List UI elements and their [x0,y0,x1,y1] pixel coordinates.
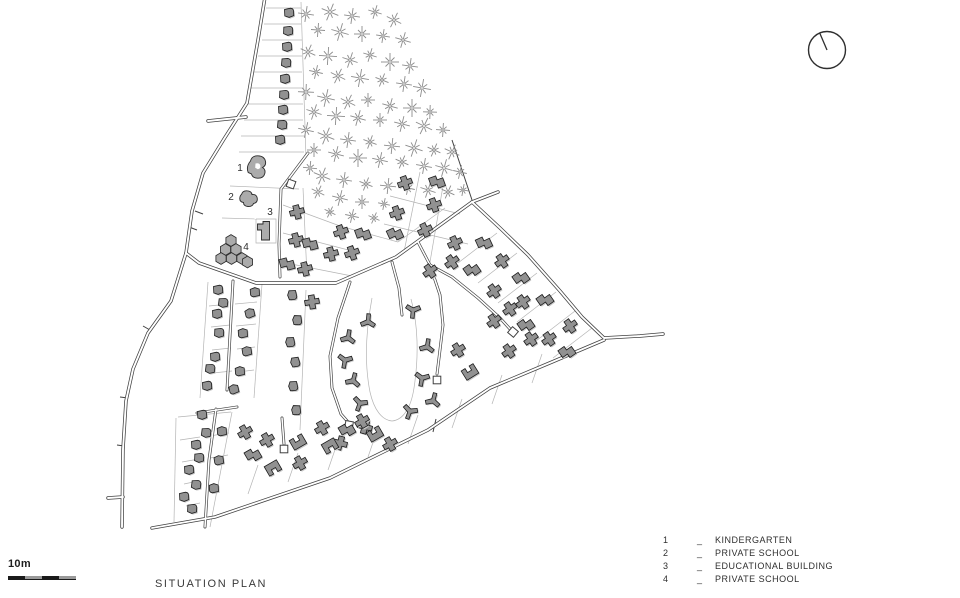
driveway-stub [143,326,150,330]
tree-icon [327,107,345,125]
tree-icon [314,168,331,185]
house-footprint [296,261,313,278]
legend-row: 2 _ PRIVATE SCHOOL [663,548,943,561]
house-footprint [446,234,465,252]
north-needle-icon [820,33,828,51]
tree-icon [342,52,357,67]
site-plan-drawing: 1234 [0,0,960,598]
lane-casing [330,282,350,422]
lane-surface [330,282,350,422]
public-building [240,191,258,207]
house-footprint [198,410,207,419]
house-footprint [281,58,291,68]
tree-icon [435,159,452,176]
tree-icon [405,139,422,156]
tree-icon [363,135,376,148]
house-footprint [416,221,435,239]
lane-surface [205,409,216,527]
house-footprint [400,404,419,422]
house-footprint [244,446,262,464]
house-footprint [291,405,301,415]
house-footprint [512,269,530,287]
parcel-line [254,284,262,398]
legend-separator: _ [697,548,715,558]
tree-icon [354,26,370,42]
house-footprint [463,261,481,279]
legend-separator: _ [697,574,715,584]
house-footprint [277,120,287,130]
scale-bar-graphic [8,576,76,580]
tree-icon [319,47,337,65]
tree-icon [345,209,359,223]
parcel-line [430,180,444,262]
lane-surface [227,281,233,390]
tree-icon [317,89,335,107]
tree-icon [380,178,396,194]
tree-icon [428,144,441,157]
house-footprint [517,316,535,334]
house-footprint [419,338,436,354]
house-footprint [292,315,302,325]
tree-icon [368,5,381,18]
legend-separator: _ [697,561,715,571]
house-footprint [211,352,220,361]
public-building [258,222,270,241]
tree-icon [376,74,389,87]
tree-icon [402,58,418,74]
tree-icon [413,79,431,97]
tree-icon [396,76,412,92]
house-footprint [288,291,297,300]
house-footprint [288,204,305,221]
tree-icon [298,84,314,100]
house-footprint [264,460,282,477]
scale-segment [8,576,25,579]
house-footprint [209,484,218,493]
house-footprint [218,297,229,308]
legend-row: 3 _ EDUCATIONAL BUILDING [663,561,943,574]
house-footprint [285,8,294,17]
house-footprint [214,285,223,294]
house-footprint [283,42,292,51]
tree-icon [341,95,355,109]
lane-turnaround [280,445,288,453]
house-footprint [281,74,290,83]
tree-icon [381,53,399,71]
tree-icon [378,198,390,210]
tree-icon [331,69,345,83]
tree-icon [307,143,321,157]
house-footprint [388,204,406,222]
house-footprint [187,504,197,514]
legend-number: 1 [663,535,697,545]
tree-icon [376,29,390,43]
house-footprint [192,440,201,449]
parcel-line [174,418,176,522]
legend: 1 _ KINDERGARTEN 2 _ PRIVATE SCHOOL 3 _ … [663,535,943,587]
tree-icon [309,65,323,79]
tree-icon [340,132,356,148]
tree-icon [298,6,314,22]
tree-icon [322,4,339,21]
legend-number: 2 [663,548,697,558]
house-footprint [343,244,361,262]
tree-icon [445,145,460,160]
house-footprint [332,223,350,241]
tree-icon [403,99,421,117]
tree-icon [328,146,344,162]
tree-icon [363,48,376,61]
house-footprint [289,434,307,451]
house-footprint [205,363,216,374]
tree-icon [344,8,360,24]
building-number-label: 2 [228,192,234,203]
tree-icon [436,123,450,137]
scale-segment [59,576,76,579]
house-footprint [214,328,224,338]
legend-row: 1 _ KINDERGARTEN [663,535,943,548]
house-footprint [191,479,202,490]
house-footprint [279,90,289,100]
house-footprint [340,329,357,345]
house-footprint [242,346,252,356]
tree-icon [384,138,400,154]
tree-icon [394,116,410,132]
house-footprint [536,291,554,309]
house-footprint [217,427,226,436]
house-footprint [461,364,479,381]
parcel-line [180,437,200,440]
lane-surface [418,242,443,374]
house-footprint [250,288,259,297]
tree-icon [349,149,367,167]
trees-layer [298,4,469,224]
tree-icon [416,158,432,174]
parcel-line [200,282,208,398]
house-footprint [279,105,288,114]
tree-icon [336,172,352,188]
house-footprint [201,427,212,438]
house-footprint [194,453,204,463]
tree-icon [396,156,409,169]
parcel-line [248,465,258,494]
tree-icon [373,113,387,127]
house-footprint [286,338,295,347]
tree-icon [350,110,365,125]
road-surface [472,192,498,202]
scale-bar: 10m [8,558,98,580]
parcel-line [236,324,256,326]
green-space-outline [366,298,417,421]
tree-icon [423,105,437,119]
house-footprint [289,382,298,391]
legend-number: 3 [663,561,697,571]
tree-icon [331,23,348,40]
house-footprint [213,309,222,318]
tree-icon [369,213,380,224]
legend-number: 4 [663,574,697,584]
north-indicator [804,27,850,73]
house-footprint [290,357,300,367]
page-title: SITUATION PLAN [155,578,267,590]
tree-icon [306,104,321,119]
lane-turnaround [433,376,441,384]
tree-icon [361,93,375,107]
house-footprint [475,235,493,252]
situation-plan-page: 1234 10m SITUATION PLAN 1 _ KINDERGARTEN… [0,0,960,598]
tree-icon [318,128,335,145]
house-footprint [203,381,212,390]
parcel-line [211,325,230,327]
house-footprint [283,26,293,36]
hexagon-building-module [226,253,236,265]
legend-separator: _ [697,535,715,545]
parcel-line [492,375,502,404]
scale-bar-label: 10m [8,558,98,570]
house-footprint [304,294,321,310]
house-footprint [276,135,285,144]
parcel-line [235,302,257,304]
tree-icon [312,186,325,199]
tree-icon [387,13,401,27]
legend-label: PRIVATE SCHOOL [715,574,943,584]
house-footprint [238,329,247,338]
tree-icon [311,23,325,37]
tree-icon [382,98,397,113]
tree-icon [355,195,369,209]
house-footprint [235,367,244,376]
building-number-label: 1 [237,163,243,174]
hexagon-building-module [242,256,252,268]
legend-label: KINDERGARTEN [715,535,943,545]
tree-icon [298,122,314,138]
tree-icon [351,69,369,87]
scale-segment [25,576,42,579]
house-footprint [180,492,189,501]
tree-icon [332,190,348,206]
parcel-line [222,218,257,219]
driveway-stub [195,211,203,214]
tree-icon [325,207,336,218]
house-footprint [214,455,224,465]
hexagon-building-module [216,253,226,265]
road-surface [108,497,123,498]
legend-label: PRIVATE SCHOOL [715,548,943,558]
building-number-label: 4 [243,242,249,253]
tree-icon [360,178,373,191]
tree-icon [416,118,432,134]
tree-icon [395,32,410,47]
legend-row: 4 _ PRIVATE SCHOOL [663,574,943,587]
legend-label: EDUCATIONAL BUILDING [715,561,943,571]
tree-icon [372,152,388,168]
house-footprint [185,465,194,474]
scale-segment [42,576,59,579]
house-footprint [322,246,339,263]
house-footprint [350,396,369,414]
building-number-label: 3 [267,207,273,218]
